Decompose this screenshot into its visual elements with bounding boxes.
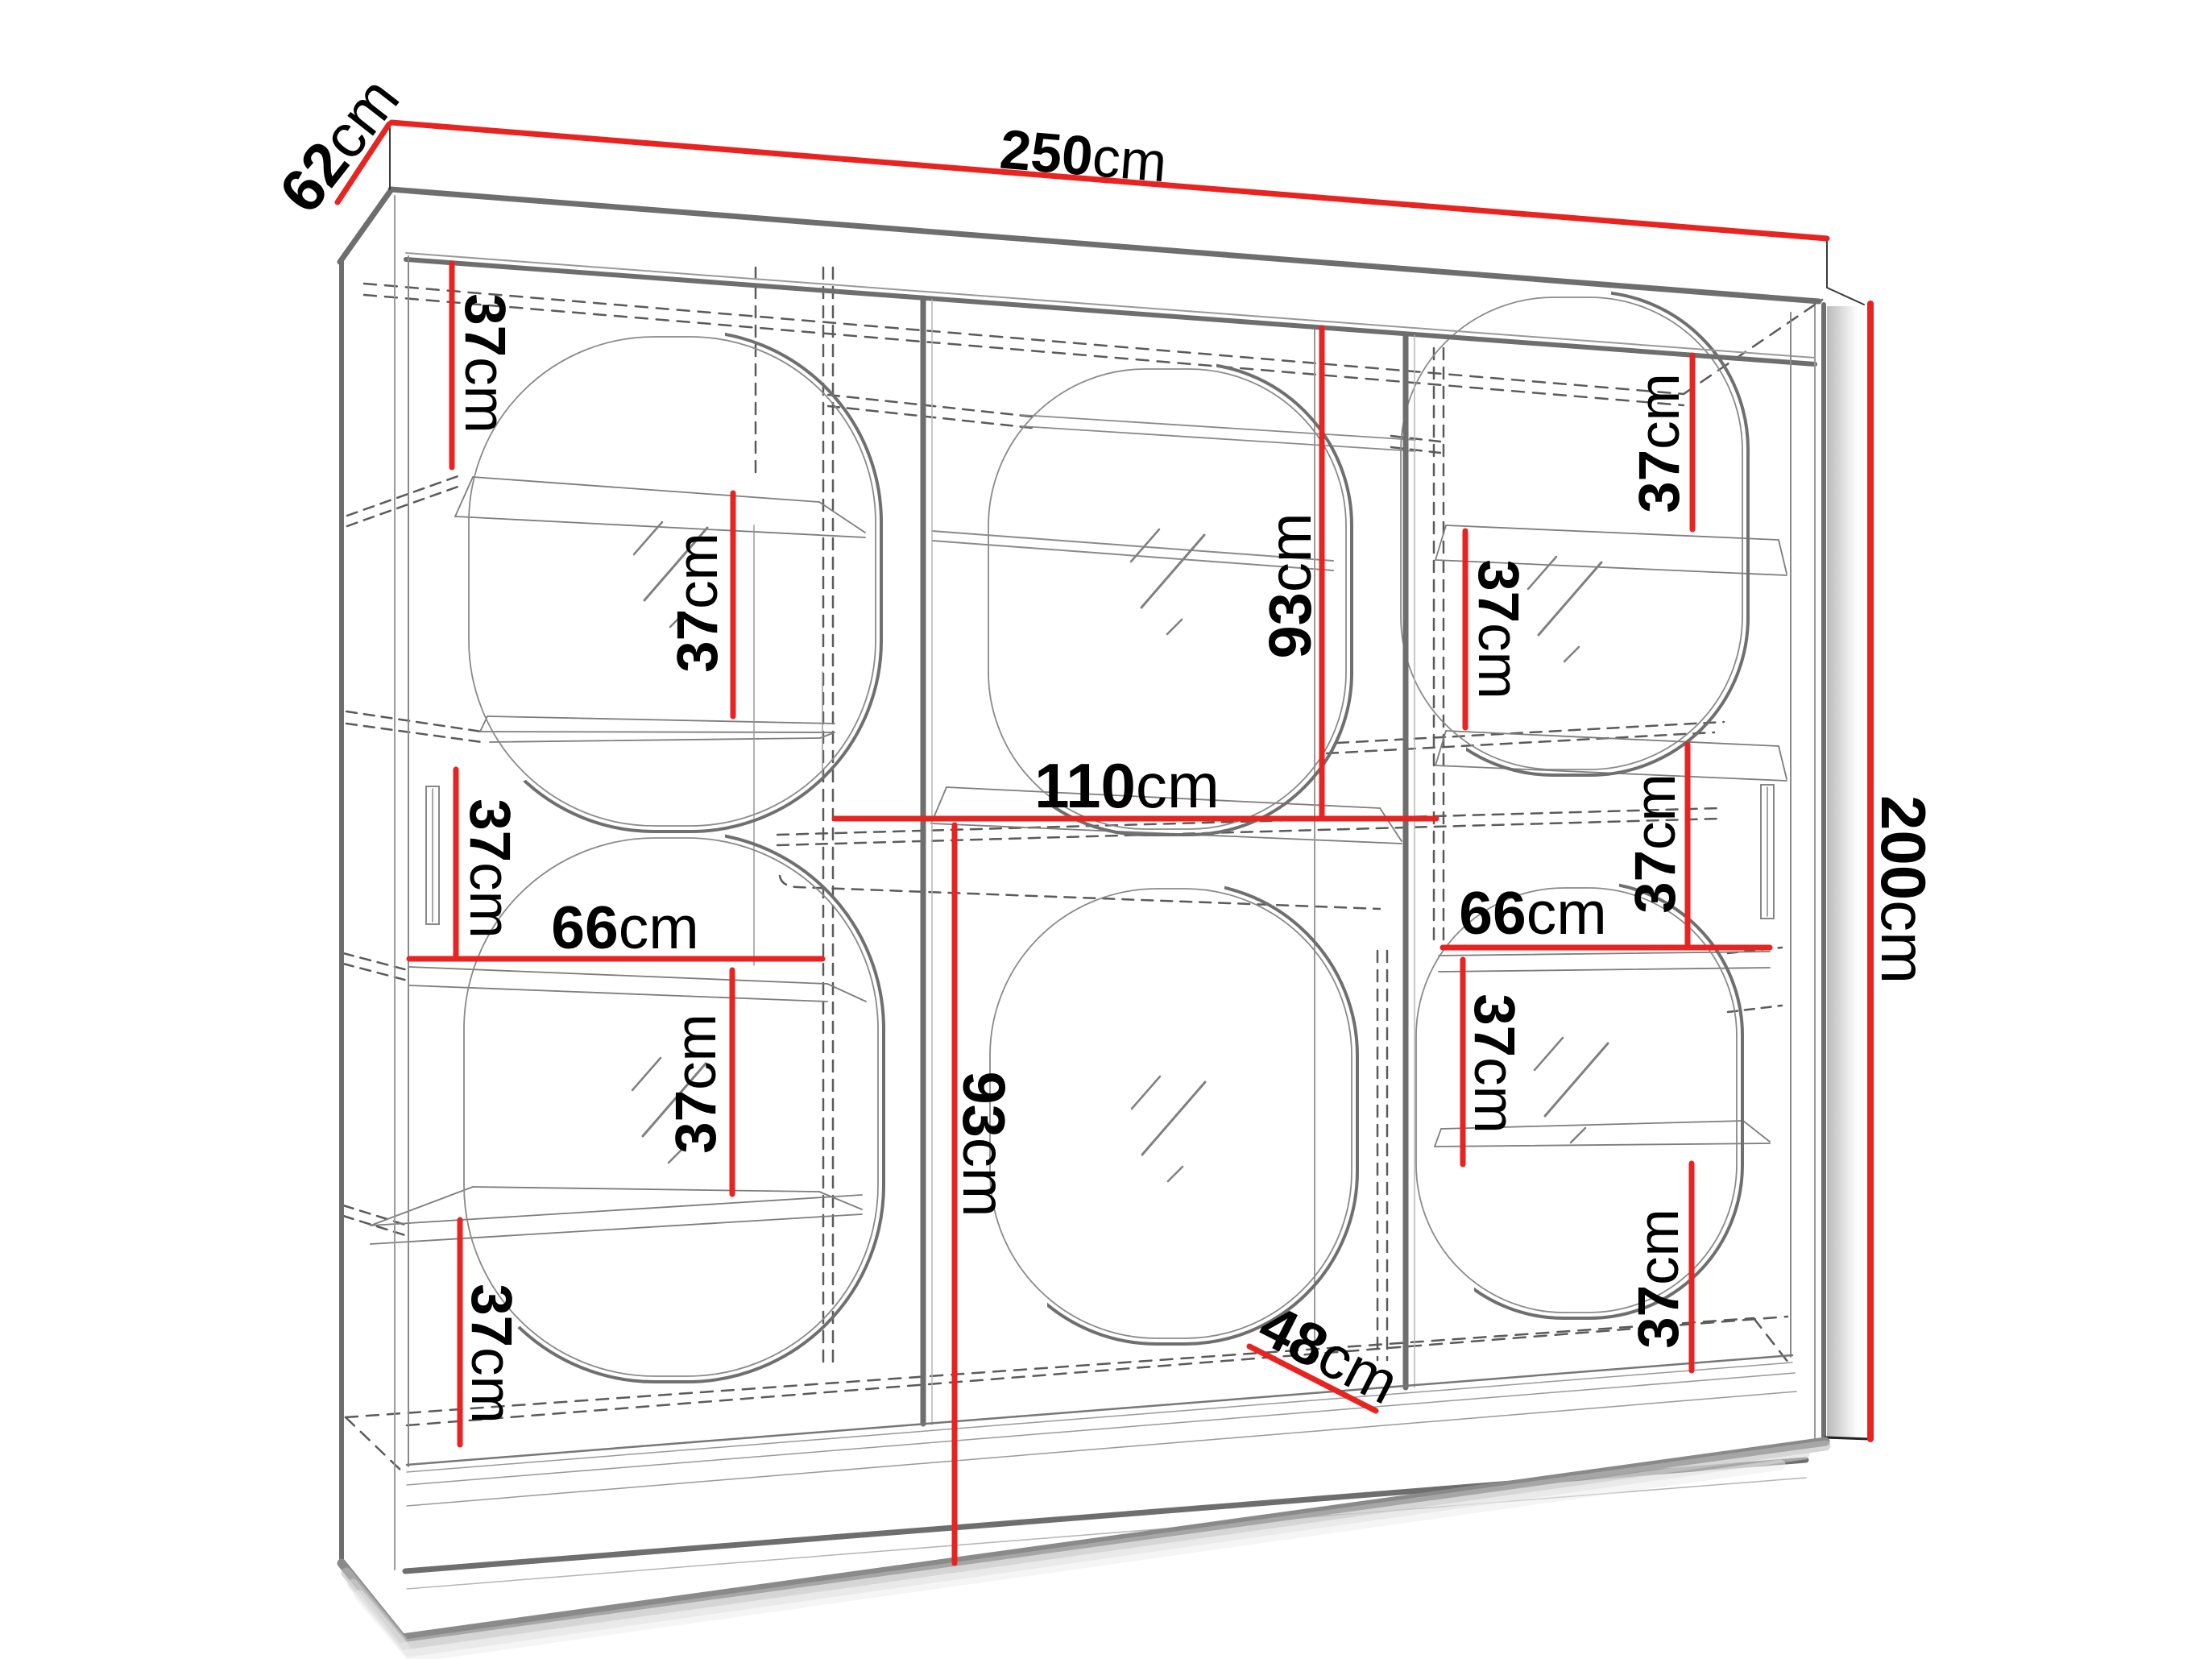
svg-text:37cm: 37cm <box>1627 1209 1691 1349</box>
svg-text:37cm: 37cm <box>1628 373 1692 513</box>
svg-text:37cm: 37cm <box>460 1284 524 1424</box>
svg-text:37cm: 37cm <box>1463 993 1526 1134</box>
svg-text:37cm: 37cm <box>665 1014 728 1154</box>
svg-text:110cm: 110cm <box>1034 750 1220 821</box>
svg-text:37cm: 37cm <box>1467 559 1531 699</box>
svg-text:93cm: 93cm <box>1257 513 1323 659</box>
svg-text:66cm: 66cm <box>1459 879 1606 947</box>
svg-text:200cm: 200cm <box>1868 795 1939 984</box>
svg-text:37cm: 37cm <box>458 798 522 939</box>
svg-text:66cm: 66cm <box>551 894 698 961</box>
svg-text:37cm: 37cm <box>454 293 517 433</box>
svg-text:37cm: 37cm <box>666 533 730 673</box>
svg-text:37cm: 37cm <box>1624 774 1688 914</box>
svg-text:93cm: 93cm <box>951 1072 1018 1217</box>
